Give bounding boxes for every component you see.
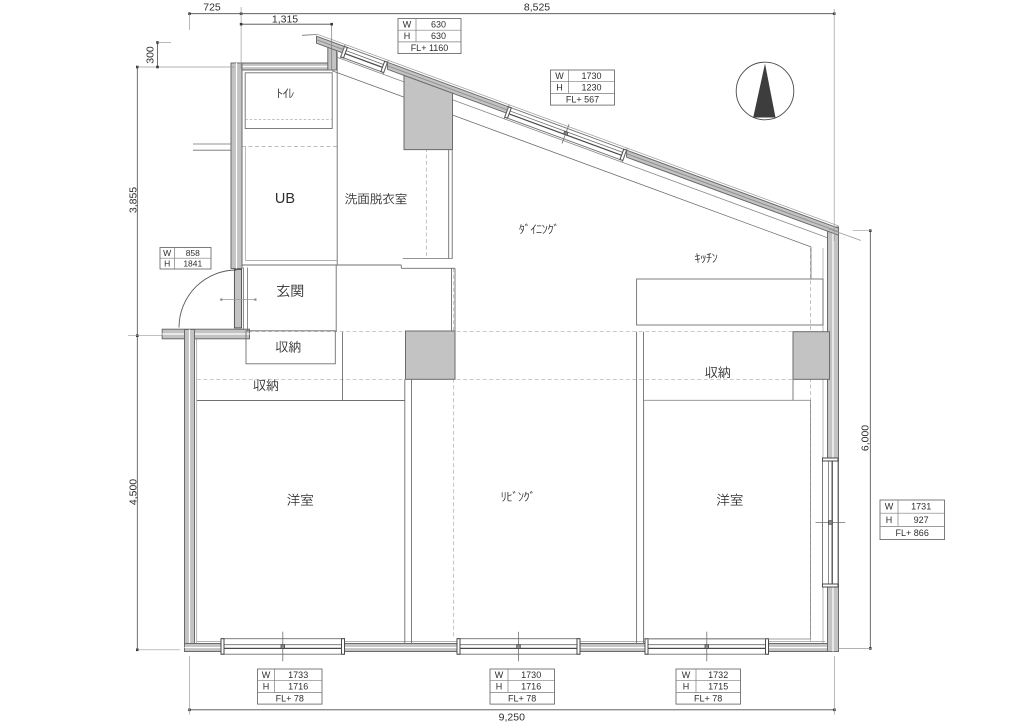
svg-text:FL+ 1160: FL+ 1160 (411, 43, 449, 53)
svg-text:630: 630 (431, 19, 446, 29)
svg-text:H: H (556, 83, 563, 93)
svg-text:H: H (683, 682, 690, 692)
svg-text:W: W (555, 71, 564, 81)
svg-text:1730: 1730 (521, 670, 541, 680)
svg-text:630: 630 (431, 31, 446, 41)
svg-text:1716: 1716 (288, 682, 308, 692)
svg-text:1733: 1733 (288, 670, 308, 680)
svg-text:8,525: 8,525 (524, 2, 550, 14)
svg-text:W: W (495, 670, 504, 680)
svg-text:W: W (885, 502, 894, 512)
svg-text:H: H (886, 515, 893, 525)
svg-text:W: W (262, 670, 271, 680)
svg-text:9,250: 9,250 (499, 712, 525, 724)
svg-text:927: 927 (914, 515, 929, 525)
svg-text:FL+ 78: FL+ 78 (276, 693, 304, 703)
svg-text:1732: 1732 (708, 670, 728, 680)
svg-text:H: H (496, 682, 503, 692)
svg-text:W: W (682, 670, 691, 680)
svg-text:1715: 1715 (708, 682, 728, 692)
svg-text:1731: 1731 (911, 502, 931, 512)
svg-text:1716: 1716 (521, 682, 541, 692)
svg-text:1730: 1730 (581, 71, 601, 81)
svg-text:3,855: 3,855 (128, 187, 140, 213)
svg-text:725: 725 (203, 2, 221, 14)
svg-text:300: 300 (145, 46, 157, 64)
svg-text:W: W (403, 19, 412, 29)
svg-text:H: H (164, 259, 170, 269)
svg-text:6,000: 6,000 (859, 425, 871, 451)
svg-text:H: H (263, 682, 270, 692)
svg-text:W: W (163, 248, 171, 258)
svg-text:FL+ 866: FL+ 866 (896, 528, 929, 538)
svg-text:FL+ 78: FL+ 78 (694, 693, 722, 703)
svg-text:UB: UB (275, 191, 295, 207)
svg-text:FL+ 78: FL+ 78 (508, 693, 536, 703)
svg-text:4,500: 4,500 (128, 479, 140, 505)
svg-text:1,315: 1,315 (272, 13, 298, 25)
svg-text:H: H (404, 31, 411, 41)
svg-text:858: 858 (186, 248, 200, 258)
svg-text:1841: 1841 (183, 259, 202, 269)
svg-text:FL+ 567: FL+ 567 (566, 94, 599, 104)
svg-text:1230: 1230 (581, 83, 601, 93)
